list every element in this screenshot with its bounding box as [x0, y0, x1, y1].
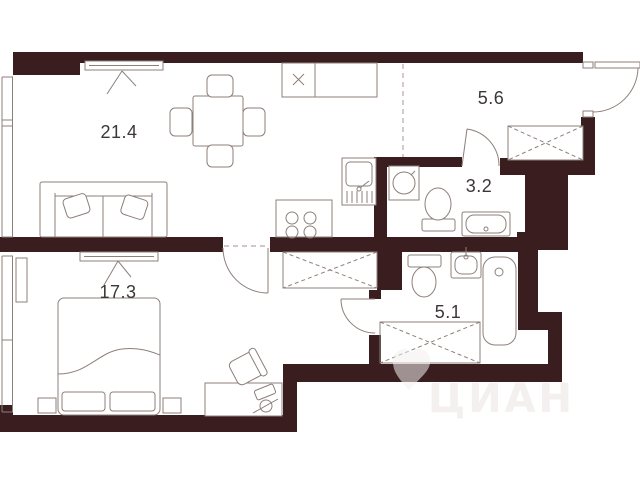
room-label-bedroom: 17.3 — [99, 282, 136, 302]
toilet-small-bath — [422, 188, 455, 231]
room-label-hallway: 5.6 — [478, 88, 505, 108]
bathtub — [483, 257, 516, 345]
room-label-bathroom-small: 3.2 — [466, 176, 493, 196]
window-left-living — [2, 77, 13, 237]
wardrobe-bedroom-nook — [283, 252, 377, 288]
desk-chair — [227, 347, 268, 388]
wardrobe-hallway — [508, 126, 583, 160]
floor-plan: 21.4 5.6 3.2 17.3 5.1 ЦИАН — [0, 0, 640, 480]
room-label-bathroom-large: 5.1 — [435, 302, 462, 322]
sofa — [40, 182, 167, 237]
kitchen-counter-top — [282, 63, 377, 97]
washing-machine — [389, 166, 419, 200]
window-top-living — [85, 61, 163, 94]
kitchen-hob — [276, 200, 332, 238]
watermark: ЦИАН — [393, 349, 575, 422]
large-bath-door — [341, 299, 375, 333]
kitchen-sink — [342, 158, 376, 205]
dining-table — [193, 96, 243, 146]
bed — [58, 298, 160, 415]
sink-small-bath — [462, 212, 510, 236]
room-label-living-kitchen: 21.4 — [100, 122, 137, 142]
window-left-bedroom — [2, 256, 27, 412]
toilet-large-bath — [408, 255, 441, 297]
window-bedroom — [80, 252, 158, 285]
watermark-text: ЦИАН — [428, 376, 575, 422]
watermark-heart-icon — [393, 349, 430, 390]
entrance-door — [583, 62, 640, 117]
sink-large-bath — [451, 247, 481, 278]
small-bath-door — [462, 129, 499, 166]
bedroom-door — [223, 246, 268, 293]
